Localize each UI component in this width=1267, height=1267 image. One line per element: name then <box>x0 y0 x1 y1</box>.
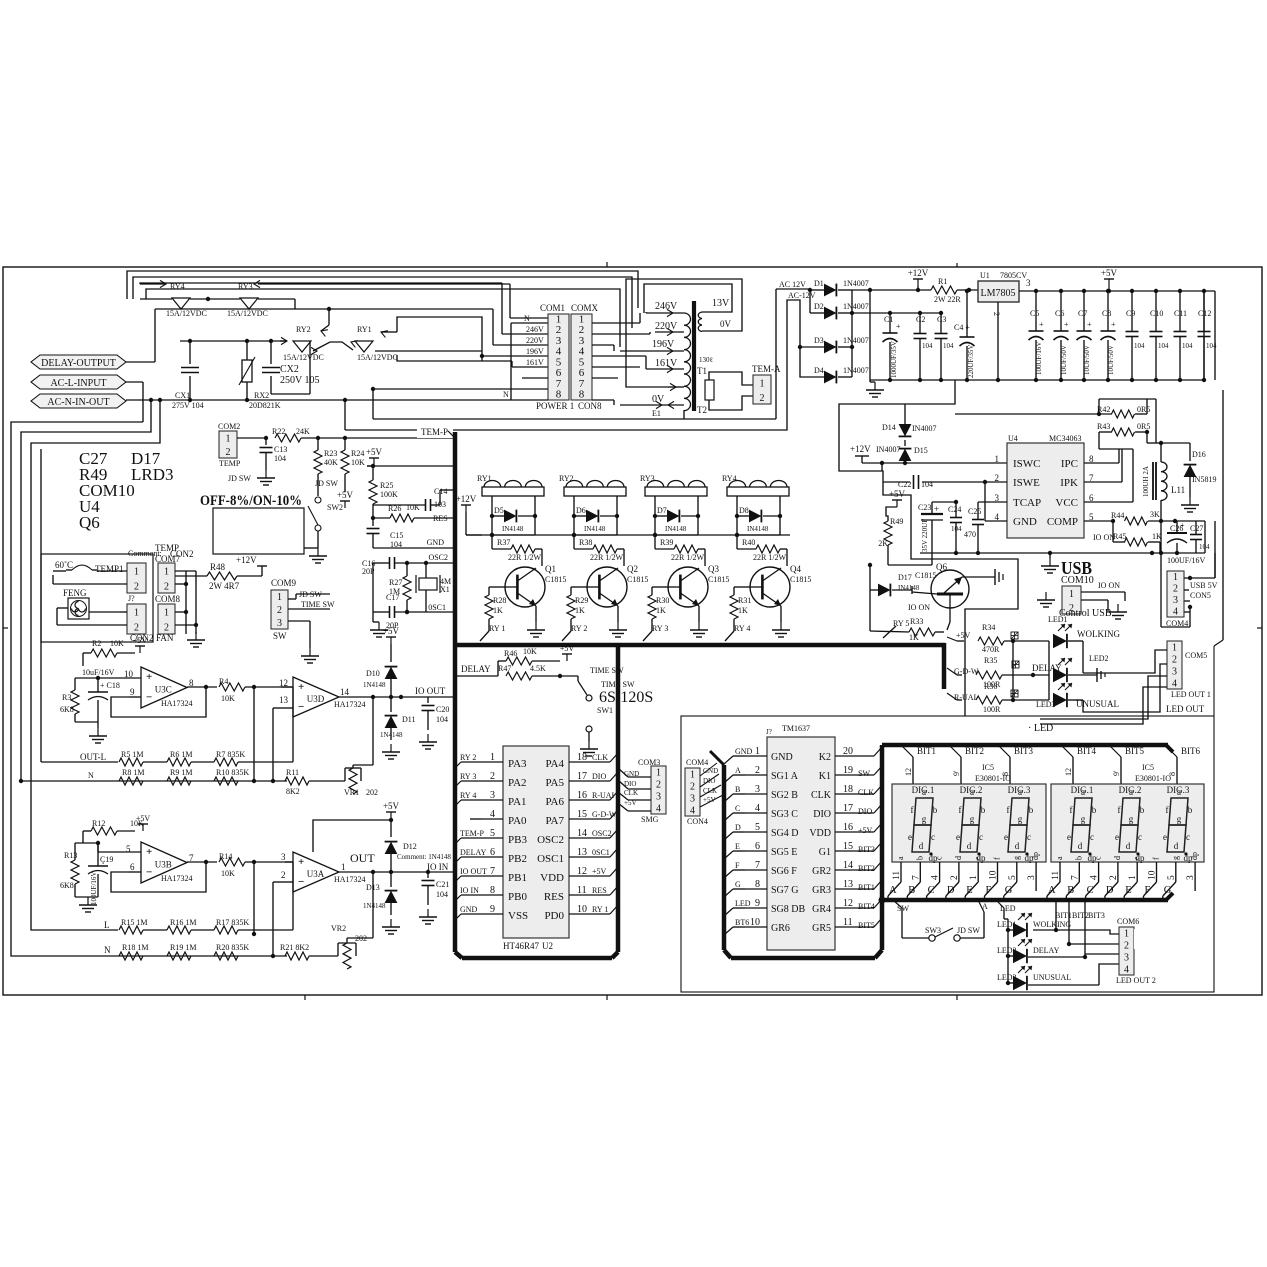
svg-text:1: 1 <box>277 592 282 603</box>
svg-text:−: − <box>298 701 304 713</box>
svg-text:104: 104 <box>1158 342 1169 350</box>
svg-text:A: A <box>1048 885 1056 896</box>
svg-text:2K: 2K <box>878 539 888 548</box>
svg-text:−: − <box>298 876 304 888</box>
svg-text:f: f <box>1166 805 1169 815</box>
svg-text:DIO: DIO <box>858 807 872 816</box>
svg-text:161V: 161V <box>655 358 678 369</box>
svg-text:10K: 10K <box>351 458 365 467</box>
svg-text:TEM-P: TEM-P <box>460 829 485 838</box>
svg-text:OUT-L: OUT-L <box>80 752 106 762</box>
svg-text:g: g <box>1012 856 1021 860</box>
svg-text:SG5 E: SG5 E <box>771 847 797 858</box>
svg-text:RES: RES <box>592 886 607 895</box>
svg-text:1K: 1K <box>738 606 748 615</box>
svg-text:+: + <box>1111 320 1116 329</box>
svg-text:VDD: VDD <box>809 828 831 839</box>
svg-text:DELAY: DELAY <box>460 848 487 857</box>
svg-text:PA6: PA6 <box>545 796 564 808</box>
svg-text:220V: 220V <box>526 336 544 345</box>
svg-text:CLK: CLK <box>592 753 608 762</box>
svg-text:SW3: SW3 <box>925 926 941 935</box>
svg-text:SW1: SW1 <box>597 706 613 715</box>
svg-text:RES: RES <box>544 891 564 903</box>
svg-text:3: 3 <box>277 618 282 629</box>
svg-text:C9: C9 <box>1126 309 1135 318</box>
svg-text:IN5819: IN5819 <box>1192 475 1216 484</box>
svg-text:JD SW: JD SW <box>957 926 980 935</box>
svg-text:−: − <box>146 867 152 879</box>
svg-text:R17 835K: R17 835K <box>216 918 249 927</box>
svg-text:35V 220UF: 35V 220UF <box>921 519 929 552</box>
svg-text:2: 2 <box>656 779 661 790</box>
svg-text:N: N <box>88 771 94 780</box>
svg-text:RY 1: RY 1 <box>489 624 505 633</box>
svg-text:104: 104 <box>1134 342 1145 350</box>
svg-text:100R: 100R <box>983 705 1001 714</box>
svg-text:· LED: · LED <box>1028 723 1053 734</box>
svg-text:1000UF/35V: 1000UF/35V <box>890 341 898 378</box>
svg-text:C15: C15 <box>390 531 403 540</box>
svg-text:E1: E1 <box>652 409 661 418</box>
svg-text:R16 1M: R16 1M <box>170 918 196 927</box>
svg-text:R47: R47 <box>498 664 511 673</box>
svg-text:TEM-A: TEM-A <box>752 364 781 374</box>
svg-text:2: 2 <box>281 870 286 880</box>
svg-text:1: 1 <box>1069 589 1074 600</box>
svg-text:VCC: VCC <box>1055 497 1078 509</box>
svg-text:R20 835K: R20 835K <box>216 943 249 952</box>
svg-text:U3B: U3B <box>155 859 172 869</box>
svg-text:OSC1: OSC1 <box>537 853 564 865</box>
svg-text:R31: R31 <box>738 596 751 605</box>
svg-text:15A/12VDC: 15A/12VDC <box>357 353 398 362</box>
svg-text:BIT5: BIT5 <box>858 921 875 930</box>
svg-text:3: 3 <box>656 791 661 802</box>
svg-text:CX2: CX2 <box>280 364 299 375</box>
svg-text:T1: T1 <box>697 366 707 376</box>
svg-text:D: D <box>1106 885 1114 896</box>
svg-text:g: g <box>1081 814 1086 824</box>
svg-text:2: 2 <box>164 582 169 593</box>
svg-text:40K: 40K <box>324 458 338 467</box>
svg-text:LM7805: LM7805 <box>981 288 1016 299</box>
svg-text:RX2: RX2 <box>254 391 269 400</box>
svg-text:COM6: COM6 <box>1117 917 1139 926</box>
svg-text:1: 1 <box>1124 928 1129 939</box>
svg-text:220V: 220V <box>655 321 678 332</box>
svg-text:IN4148: IN4148 <box>747 525 769 533</box>
svg-text:2: 2 <box>277 605 282 616</box>
svg-text:C1815: C1815 <box>915 571 936 580</box>
svg-text:A: A <box>982 902 988 911</box>
svg-text:R10 835K: R10 835K <box>216 768 249 777</box>
svg-text:RY 1: RY 1 <box>592 905 608 914</box>
svg-text:IO ON: IO ON <box>908 603 930 612</box>
svg-text:D3: D3 <box>814 336 824 345</box>
svg-text:BIT2: BIT2 <box>965 746 984 756</box>
svg-text:E30801-IO: E30801-IO <box>975 774 1011 783</box>
svg-text:DELAY-OUTPUT: DELAY-OUTPUT <box>41 358 116 369</box>
svg-text:9: 9 <box>130 687 135 697</box>
svg-text:c: c <box>1027 832 1031 842</box>
svg-text:N: N <box>524 314 530 323</box>
svg-text:13: 13 <box>279 695 289 705</box>
svg-text:R48: R48 <box>210 562 226 572</box>
svg-text:C13: C13 <box>274 445 287 454</box>
svg-text:PD0: PD0 <box>544 910 564 922</box>
svg-text:100UF/16V: 100UF/16V <box>90 872 98 905</box>
svg-text:g: g <box>1171 856 1180 860</box>
svg-text:e: e <box>1004 832 1008 842</box>
svg-text:22R 1/2W: 22R 1/2W <box>753 553 787 562</box>
svg-text:2: 2 <box>134 582 139 593</box>
svg-text:BT6: BT6 <box>735 918 749 927</box>
svg-text:1: 1 <box>995 454 1000 464</box>
svg-text:1: 1 <box>134 567 139 578</box>
svg-text:LRD3: LRD3 <box>131 465 174 484</box>
svg-text:SG8 DB: SG8 DB <box>771 904 806 915</box>
svg-text:104: 104 <box>436 715 448 724</box>
svg-text:12: 12 <box>904 768 913 776</box>
svg-text:R5 1M: R5 1M <box>121 750 143 759</box>
svg-text:DELAY: DELAY <box>461 664 491 674</box>
svg-text:2W 4R7: 2W 4R7 <box>209 581 240 591</box>
svg-text:LED3: LED3 <box>1036 700 1056 709</box>
svg-text:BIT1: BIT1 <box>917 746 936 756</box>
svg-text:1: 1 <box>164 567 169 578</box>
svg-text:e: e <box>973 856 982 860</box>
svg-text:HA17324: HA17324 <box>334 700 366 709</box>
svg-text:2: 2 <box>226 447 231 458</box>
svg-text:GR4: GR4 <box>812 904 831 915</box>
svg-text:e: e <box>1132 856 1141 860</box>
svg-text:+12V: +12V <box>456 494 477 504</box>
svg-text:dp: dp <box>1190 852 1199 860</box>
svg-text:R49: R49 <box>890 517 903 526</box>
svg-text:B: B <box>1067 885 1074 896</box>
svg-text:f: f <box>993 857 1002 860</box>
svg-text:TM1637: TM1637 <box>782 724 810 733</box>
svg-text:a: a <box>1055 856 1064 860</box>
svg-text:R39: R39 <box>660 538 673 547</box>
svg-text:Q4: Q4 <box>790 564 801 574</box>
svg-text:B: B <box>735 785 740 794</box>
svg-text:104: 104 <box>951 525 962 533</box>
svg-text:PA3: PA3 <box>508 758 527 770</box>
svg-text:CON5: CON5 <box>1190 591 1211 600</box>
svg-text:SW: SW <box>273 631 287 641</box>
svg-text:1N4007: 1N4007 <box>843 336 869 345</box>
svg-text:IN4007: IN4007 <box>912 424 936 433</box>
svg-text:IN4148: IN4148 <box>502 525 524 533</box>
svg-text:E: E <box>1125 885 1131 896</box>
svg-text:+5V: +5V <box>133 636 148 645</box>
svg-text:B: B <box>908 885 915 896</box>
svg-text:202: 202 <box>366 788 378 797</box>
svg-text:4.5K: 4.5K <box>530 664 546 673</box>
svg-text:b: b <box>915 856 924 860</box>
svg-text:LED: LED <box>1000 904 1016 913</box>
svg-text:1: 1 <box>690 769 695 780</box>
svg-text:1N4148: 1N4148 <box>363 902 386 910</box>
svg-text:UNUSUAL: UNUSUAL <box>1033 973 1071 982</box>
svg-text:DIO: DIO <box>592 772 606 781</box>
svg-text:C: C <box>928 885 935 896</box>
svg-text:CON4: CON4 <box>687 817 708 826</box>
svg-text:8: 8 <box>579 389 585 401</box>
svg-text:R46: R46 <box>504 649 517 658</box>
svg-text:1: 1 <box>1173 572 1178 583</box>
svg-text:R12: R12 <box>92 819 105 828</box>
svg-text:4: 4 <box>656 803 661 814</box>
svg-text:f: f <box>1007 805 1010 815</box>
svg-text:+: + <box>934 504 939 514</box>
svg-text:d: d <box>1078 841 1083 851</box>
svg-text:+: + <box>1180 521 1185 530</box>
svg-text:dp: dp <box>1031 852 1040 860</box>
svg-text:LED2: LED2 <box>1089 654 1109 663</box>
svg-text:+12V: +12V <box>236 555 257 565</box>
svg-text:TCAP: TCAP <box>1013 497 1041 509</box>
svg-text:TEM-P: TEM-P <box>421 427 448 437</box>
svg-text:VR1: VR1 <box>344 788 359 797</box>
svg-text:IPK: IPK <box>1060 477 1078 489</box>
svg-text:9': 9' <box>952 770 961 776</box>
svg-text:f: f <box>1152 857 1161 860</box>
svg-text:D15: D15 <box>914 446 928 455</box>
svg-text:+5V: +5V <box>337 490 354 500</box>
svg-text:246V: 246V <box>526 325 544 334</box>
svg-text:g: g <box>970 814 975 824</box>
svg-text:DIO: DIO <box>813 809 831 820</box>
svg-text:L11: L11 <box>1171 485 1185 495</box>
svg-text:BIT2: BIT2 <box>858 864 875 873</box>
svg-text:+ C18: + C18 <box>100 681 120 690</box>
svg-text:C23: C23 <box>918 503 931 512</box>
svg-text:HA17324: HA17324 <box>161 874 193 883</box>
svg-text:E30801-IO: E30801-IO <box>1135 774 1171 783</box>
svg-text:b: b <box>1092 805 1097 815</box>
svg-text:X1: X1 <box>440 585 450 594</box>
svg-text:GR3: GR3 <box>812 885 831 896</box>
svg-text:1N4007: 1N4007 <box>843 366 869 375</box>
svg-text:BIT3: BIT3 <box>1014 746 1033 756</box>
svg-text:b: b <box>981 805 986 815</box>
svg-text:R36: R36 <box>984 682 997 691</box>
svg-text:D12: D12 <box>403 842 417 851</box>
svg-text:22R 1/2W: 22R 1/2W <box>671 553 705 562</box>
svg-text:R35: R35 <box>984 656 997 665</box>
svg-text:R24: R24 <box>351 449 364 458</box>
svg-text:15A/12VDC: 15A/12VDC <box>166 309 207 318</box>
svg-text:8: 8 <box>556 389 562 401</box>
svg-text:2: 2 <box>1173 583 1178 594</box>
svg-text:CLK: CLK <box>858 788 874 797</box>
svg-text:OFF-8%/ON-10%: OFF-8%/ON-10% <box>200 493 302 509</box>
svg-text:104: 104 <box>1182 342 1193 350</box>
svg-text:+5V: +5V <box>1101 268 1118 278</box>
svg-text:b: b <box>933 805 938 815</box>
svg-text:f: f <box>959 805 962 815</box>
svg-text:246V: 246V <box>655 301 678 312</box>
svg-text:d: d <box>1174 841 1179 851</box>
svg-text:R21 8K2: R21 8K2 <box>280 943 309 952</box>
svg-text:COM10: COM10 <box>1061 575 1094 586</box>
svg-text:C17: C17 <box>386 593 399 602</box>
svg-text:U2: U2 <box>542 941 553 951</box>
svg-text:a: a <box>1177 787 1181 797</box>
svg-text:C21: C21 <box>436 880 449 889</box>
svg-text:SG3 C: SG3 C <box>771 809 798 820</box>
svg-text:G1: G1 <box>819 847 831 858</box>
svg-text:COM5: COM5 <box>1185 651 1207 660</box>
svg-text:1K: 1K <box>493 606 503 615</box>
svg-text:R1: R1 <box>938 277 947 286</box>
svg-text:A: A <box>889 885 897 896</box>
svg-text:CLK: CLK <box>624 789 638 797</box>
svg-text:C7: C7 <box>1078 309 1087 318</box>
svg-text:1: 1 <box>760 378 765 389</box>
svg-text:+12V: +12V <box>908 268 929 278</box>
svg-text:10UF/50V: 10UF/50V <box>1083 345 1091 375</box>
svg-text:G: G <box>735 880 741 889</box>
svg-text:JD SW: JD SW <box>228 474 251 483</box>
svg-text:10K: 10K <box>523 647 537 656</box>
svg-text:R45: R45 <box>1113 532 1126 541</box>
svg-text:RY2: RY2 <box>296 325 311 334</box>
svg-text:PA1: PA1 <box>508 796 527 808</box>
svg-text:PB3: PB3 <box>508 834 527 846</box>
svg-text:N: N <box>503 390 509 399</box>
svg-text:JD SW: JD SW <box>315 479 338 488</box>
svg-text:R19 1M: R19 1M <box>170 943 196 952</box>
svg-text:1N4148: 1N4148 <box>380 731 403 739</box>
svg-text:C20: C20 <box>436 705 449 714</box>
svg-text:12: 12 <box>1064 768 1073 776</box>
svg-text:c: c <box>935 856 944 860</box>
svg-text:PA7: PA7 <box>545 815 564 827</box>
svg-text:PA2: PA2 <box>508 777 527 789</box>
svg-text:C1: C1 <box>884 315 893 324</box>
svg-text:100UF/16V: 100UF/16V <box>1035 342 1043 375</box>
svg-text:f: f <box>1070 805 1073 815</box>
svg-text:RY 4: RY 4 <box>460 791 476 800</box>
svg-text:C: C <box>735 804 740 813</box>
svg-text:2: 2 <box>690 781 695 792</box>
svg-text:e: e <box>1067 832 1071 842</box>
svg-text:J?: J? <box>766 728 772 736</box>
svg-text:10UF/50V: 10UF/50V <box>1060 345 1068 375</box>
svg-text:d: d <box>1113 856 1122 860</box>
svg-text:D4: D4 <box>814 366 824 375</box>
svg-text:d: d <box>954 856 963 860</box>
svg-text:R33: R33 <box>910 617 923 626</box>
svg-text:COM4: COM4 <box>686 758 708 767</box>
svg-text:D6: D6 <box>576 506 586 515</box>
svg-text:220UF/35V: 220UF/35V <box>967 345 975 378</box>
svg-text:GR5: GR5 <box>812 923 831 934</box>
svg-text:2W 22R: 2W 22R <box>934 295 961 304</box>
svg-text:SG7 G: SG7 G <box>771 885 799 896</box>
svg-text:1N4007: 1N4007 <box>843 302 869 311</box>
svg-text:e: e <box>1115 832 1119 842</box>
svg-text:470R: 470R <box>982 645 1000 654</box>
svg-text:100UH 2A: 100UH 2A <box>1142 466 1150 497</box>
svg-text:6S/120S: 6S/120S <box>599 689 653 706</box>
svg-text:1: 1 <box>134 608 139 619</box>
svg-text:C1815: C1815 <box>627 575 648 584</box>
svg-text:d: d <box>1126 841 1131 851</box>
svg-text:3: 3 <box>1173 595 1178 606</box>
svg-text:1N4007: 1N4007 <box>843 279 869 288</box>
svg-text:1K: 1K <box>909 633 919 642</box>
svg-text:BIT3: BIT3 <box>858 845 875 854</box>
svg-text:AC-N-IN-OUT: AC-N-IN-OUT <box>47 397 109 408</box>
svg-text:c: c <box>931 832 935 842</box>
svg-text:GR2: GR2 <box>812 866 831 877</box>
svg-text:COMX: COMX <box>571 303 599 313</box>
svg-text:Q1: Q1 <box>545 564 556 574</box>
svg-text:U3D: U3D <box>307 694 325 704</box>
svg-text:8K2: 8K2 <box>286 787 300 796</box>
svg-text:R11: R11 <box>286 768 299 777</box>
svg-text:LED OUT 1: LED OUT 1 <box>1171 690 1211 699</box>
svg-text:IN4148: IN4148 <box>898 584 920 592</box>
svg-text:+5V: +5V <box>592 867 607 876</box>
svg-text:VDD: VDD <box>540 872 564 884</box>
svg-text:VSS: VSS <box>508 910 528 922</box>
svg-text:20D821K: 20D821K <box>249 401 281 410</box>
svg-text:10K: 10K <box>406 503 420 512</box>
svg-text:0SC1: 0SC1 <box>428 603 446 612</box>
svg-text:RY 2: RY 2 <box>571 624 587 633</box>
svg-text:BIT1: BIT1 <box>858 883 875 892</box>
svg-text:HA17324: HA17324 <box>161 699 193 708</box>
svg-text:IO IN: IO IN <box>427 862 449 872</box>
svg-text:RY 2: RY 2 <box>460 753 476 762</box>
svg-text:IO OUT: IO OUT <box>415 686 446 696</box>
svg-text:+: + <box>1064 320 1069 329</box>
svg-text:OSC2: OSC2 <box>537 834 564 846</box>
svg-text:0V: 0V <box>720 319 732 329</box>
svg-text:RES: RES <box>433 514 448 523</box>
svg-text:d: d <box>967 841 972 851</box>
svg-text:T2: T2 <box>697 405 707 415</box>
svg-text:D11: D11 <box>402 715 415 724</box>
svg-text:Q3: Q3 <box>708 564 719 574</box>
svg-text:104: 104 <box>274 454 286 463</box>
svg-text:2: 2 <box>1124 940 1129 951</box>
svg-text:D: D <box>735 823 741 832</box>
svg-text:CX1: CX1 <box>175 391 190 400</box>
svg-text:BIT4: BIT4 <box>858 902 875 911</box>
svg-text:C5: C5 <box>1030 309 1039 318</box>
svg-text:GND: GND <box>460 905 478 914</box>
svg-text:COMP: COMP <box>1047 516 1078 528</box>
svg-text:DELAY: DELAY <box>1033 946 1060 955</box>
svg-text:C6: C6 <box>1055 309 1064 318</box>
svg-text:R7 835K: R7 835K <box>216 750 245 759</box>
svg-text:COM8: COM8 <box>155 594 181 604</box>
svg-text:D10: D10 <box>366 669 380 678</box>
svg-text:275V 104: 275V 104 <box>172 401 204 410</box>
svg-text:BIT5: BIT5 <box>1125 746 1144 756</box>
svg-text:FAN: FAN <box>156 633 174 643</box>
svg-text:3: 3 <box>1172 666 1177 677</box>
svg-text:R30: R30 <box>656 596 669 605</box>
svg-text:U3A: U3A <box>307 869 325 879</box>
